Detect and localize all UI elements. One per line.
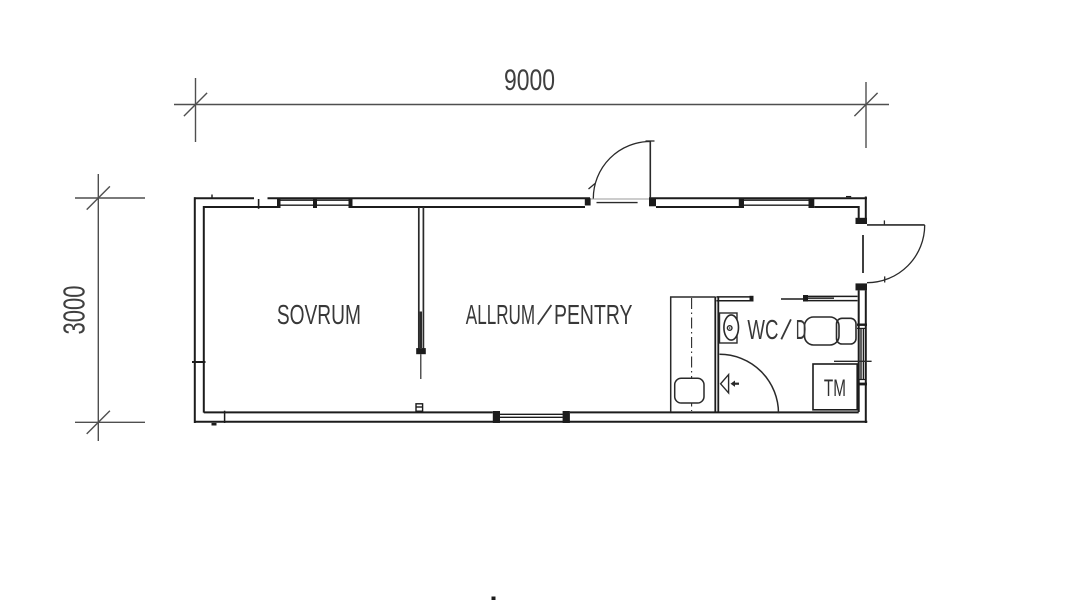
svg-text:PENTRY: PENTRY bbox=[554, 299, 633, 330]
svg-text:ALLRUM: ALLRUM bbox=[466, 299, 535, 330]
svg-text:9000: 9000 bbox=[504, 64, 555, 97]
svg-text:D: D bbox=[796, 314, 807, 345]
svg-text:TM: TM bbox=[824, 375, 846, 402]
svg-text:3000: 3000 bbox=[57, 286, 92, 335]
svg-text:WC: WC bbox=[747, 314, 778, 345]
svg-text:SOVRUM: SOVRUM bbox=[277, 299, 361, 330]
